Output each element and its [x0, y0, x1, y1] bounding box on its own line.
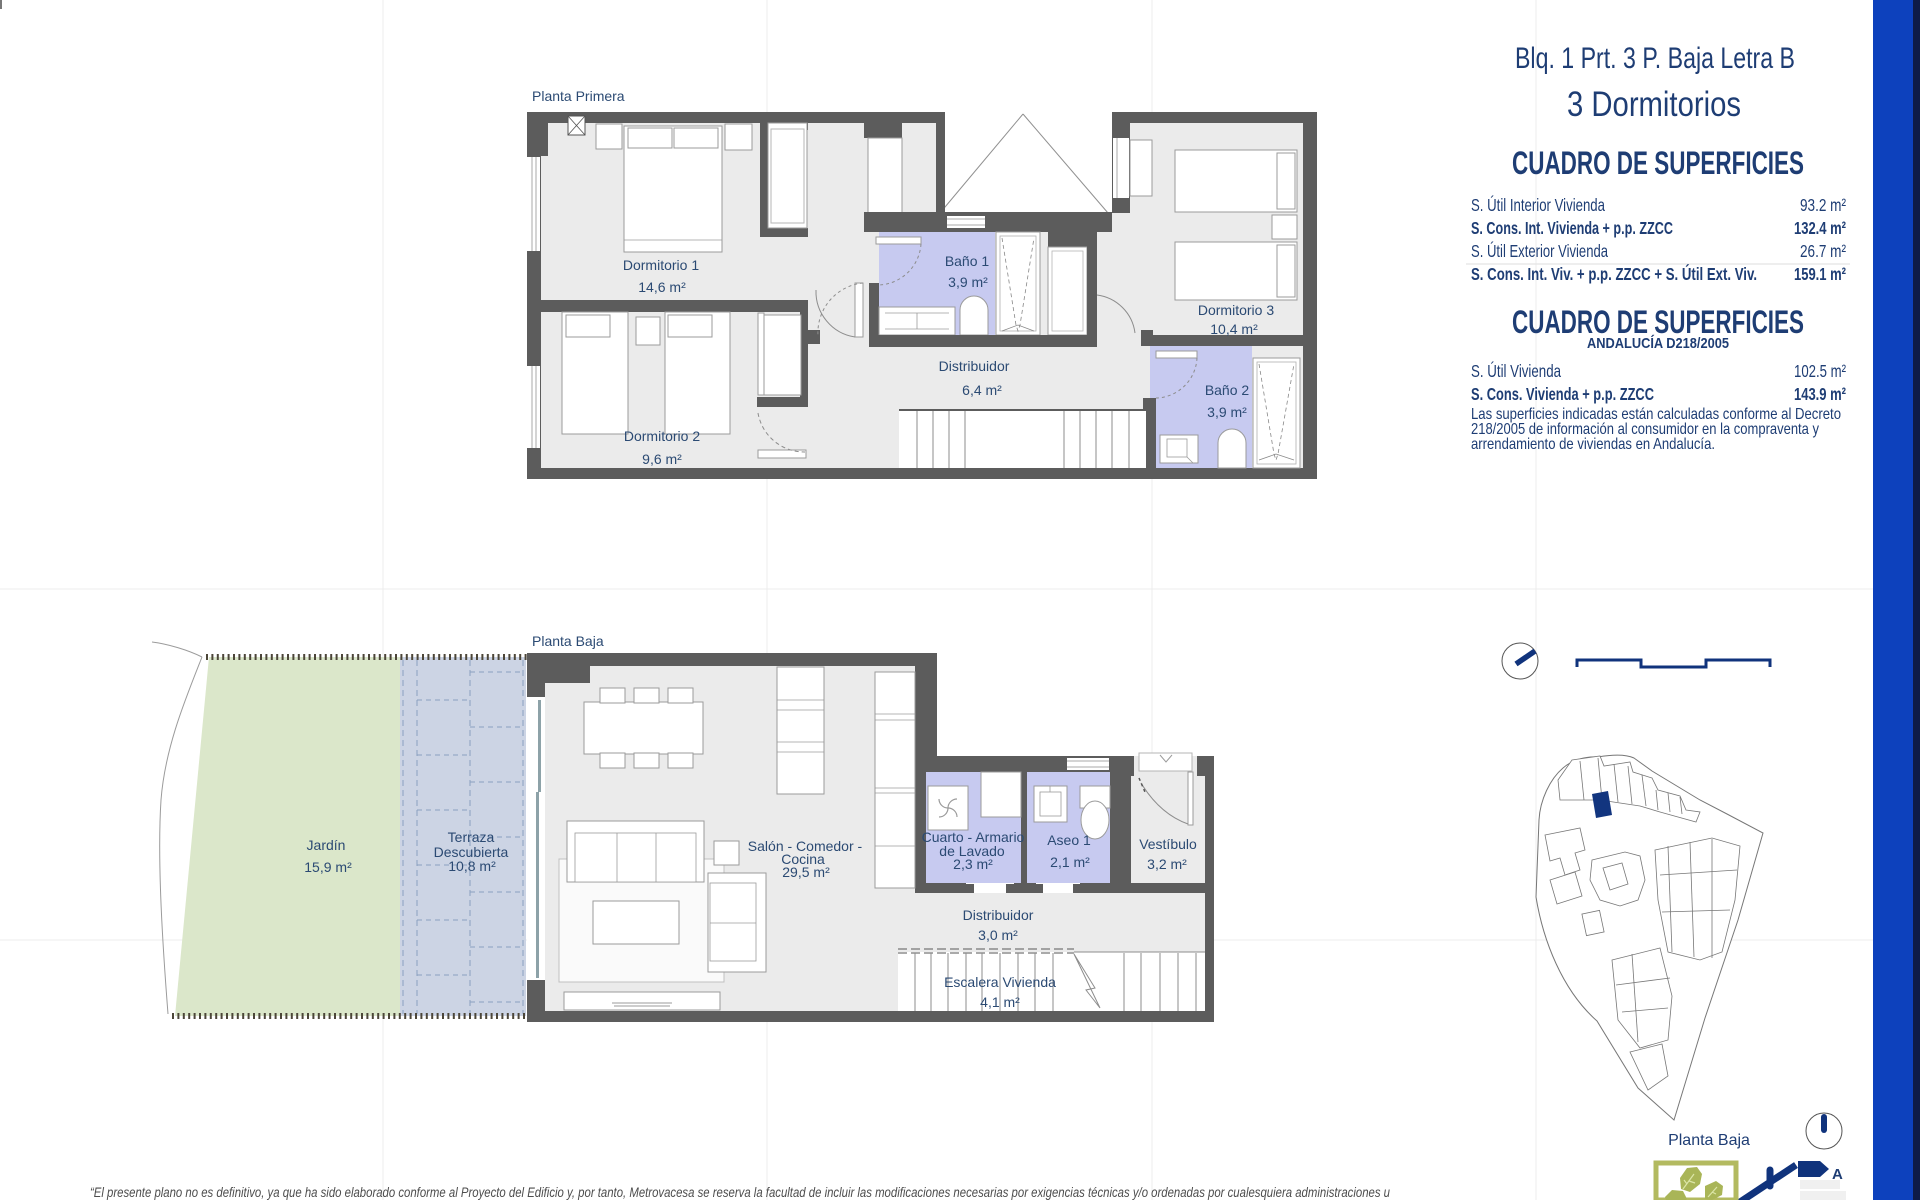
svg-text:Vestíbulo: Vestíbulo [1139, 836, 1197, 852]
svg-text:Baño 1: Baño 1 [945, 253, 990, 269]
svg-text:4,1 m²: 4,1 m² [980, 994, 1020, 1010]
svg-text:S. Cons. Int. Viv. + p.p. ZZCC: S. Cons. Int. Viv. + p.p. ZZCC + S. Útil… [1471, 263, 1757, 284]
svg-text:CUADRO DE SUPERFICIES: CUADRO DE SUPERFICIES [1512, 145, 1804, 181]
svg-text:6,4 m²: 6,4 m² [962, 382, 1002, 398]
svg-text:9,6 m²: 9,6 m² [642, 451, 682, 467]
svg-text:Baño 2: Baño 2 [1205, 382, 1250, 398]
svg-text:2,3 m²: 2,3 m² [953, 856, 993, 872]
svg-text:S. Cons. Vivienda + p.p. ZZCC: S. Cons. Vivienda + p.p. ZZCC [1471, 384, 1654, 404]
svg-text:Dormitorio 3: Dormitorio 3 [1198, 302, 1274, 318]
svg-text:S. Cons. Int. Vivienda + p.p.: S. Cons. Int. Vivienda + p.p. ZZCC [1471, 218, 1673, 238]
svg-text:ANDALUCÍA D218/2005: ANDALUCÍA D218/2005 [1587, 335, 1729, 352]
svg-text:3,9 m²: 3,9 m² [948, 274, 988, 290]
svg-text:Planta Primera: Planta Primera [532, 88, 625, 104]
svg-text:10,4 m²: 10,4 m² [1210, 321, 1258, 337]
svg-text:3,2 m²: 3,2 m² [1147, 856, 1187, 872]
svg-text:26.7 m²: 26.7 m² [1800, 241, 1846, 261]
svg-text:Planta Baja: Planta Baja [1668, 1132, 1750, 1149]
svg-text:Distribuidor: Distribuidor [963, 907, 1034, 923]
svg-text:3,0 m²: 3,0 m² [978, 927, 1018, 943]
svg-text:S. Útil Exterior Vivienda: S. Útil Exterior Vivienda [1471, 240, 1608, 261]
svg-text:15,9 m²: 15,9 m² [304, 859, 352, 875]
svg-text:arrendamiento de viviendas en: arrendamiento de viviendas en Andalucía. [1471, 436, 1715, 453]
svg-text:10,8 m²: 10,8 m² [448, 858, 496, 874]
svg-text:159.1 m²: 159.1 m² [1794, 264, 1846, 284]
svg-text:Blq. 1 Prt. 3 P. Baja Letra B: Blq. 1 Prt. 3 P. Baja Letra B [1515, 42, 1795, 75]
svg-text:3 Dormitorios: 3 Dormitorios [1567, 85, 1741, 124]
svg-text:3,9 m²: 3,9 m² [1207, 404, 1247, 420]
svg-text:Dormitorio 2: Dormitorio 2 [624, 428, 700, 444]
svg-text:Escalera Vivienda: Escalera Vivienda [944, 974, 1056, 990]
svg-text:Terraza: Terraza [448, 829, 495, 845]
svg-text:Distribuidor: Distribuidor [939, 358, 1010, 374]
svg-text:S. Útil Interior Vivienda: S. Útil Interior Vivienda [1471, 194, 1605, 215]
svg-text:143.9 m²: 143.9 m² [1794, 384, 1846, 404]
svg-text:Planta Baja: Planta Baja [532, 633, 604, 649]
svg-text:93.2 m²: 93.2 m² [1800, 195, 1846, 215]
svg-text:102.5 m²: 102.5 m² [1794, 361, 1846, 381]
svg-text:2,1 m²: 2,1 m² [1050, 854, 1090, 870]
svg-text:Jardín: Jardín [307, 837, 346, 853]
svg-text:132.4 m²: 132.4 m² [1794, 218, 1846, 238]
svg-text:A: A [1832, 1166, 1843, 1183]
svg-text:Dormitorio 1: Dormitorio 1 [623, 257, 699, 273]
svg-text:“El presente plano no es defin: “El presente plano no es definitivo, ya … [90, 1185, 1390, 1200]
svg-text:14,6 m²: 14,6 m² [638, 279, 686, 295]
svg-text:S. Útil Vivienda: S. Útil Vivienda [1471, 360, 1561, 381]
svg-text:29,5 m²: 29,5 m² [782, 864, 830, 880]
svg-text:Aseo 1: Aseo 1 [1047, 832, 1091, 848]
